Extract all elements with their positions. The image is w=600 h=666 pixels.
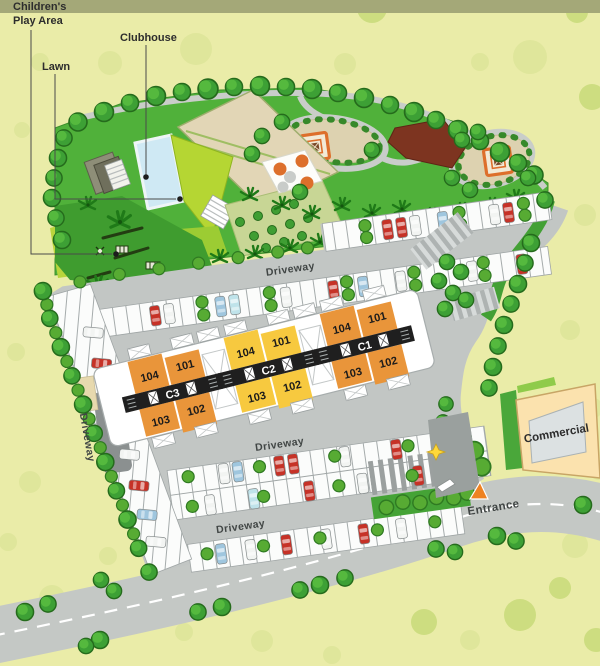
legend-childrens-line2: Play Area (13, 15, 64, 27)
site-plan-map: Driveway Driveway Driveway Driveway (0, 0, 600, 666)
site-plan: Driveway Driveway Driveway Driveway (0, 0, 600, 666)
legend-clubhouse: Clubhouse (120, 32, 177, 44)
legend-lawn: Lawn (42, 61, 70, 73)
leader-dot-lawn (177, 196, 183, 202)
legend-childrens-line1: Children's (13, 1, 66, 13)
leader-dot-clubhouse (143, 174, 149, 180)
leader-dot-play-area (113, 251, 119, 257)
top-olive-band (0, 0, 600, 13)
